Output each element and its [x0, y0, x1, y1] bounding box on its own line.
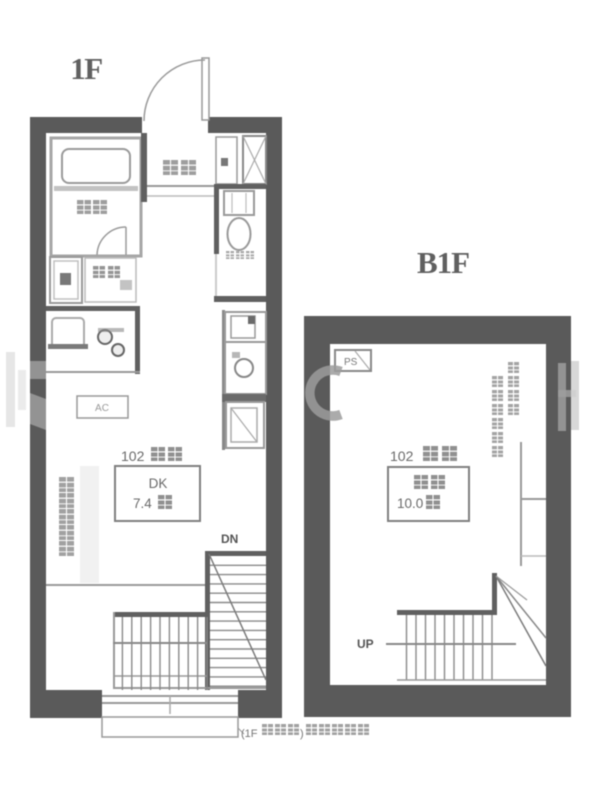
svg-text:): )	[300, 728, 304, 740]
svg-text:AC: AC	[95, 403, 109, 414]
svg-text:10.0: 10.0	[397, 496, 423, 511]
svg-text:1F: 1F	[70, 51, 102, 86]
svg-text:DK: DK	[149, 476, 168, 491]
svg-text:(1F: (1F	[241, 728, 258, 740]
svg-text:102: 102	[121, 448, 145, 464]
svg-text:DN: DN	[221, 532, 238, 546]
svg-text:B1F: B1F	[417, 245, 469, 280]
svg-text:102: 102	[390, 448, 414, 464]
svg-text:7.4: 7.4	[133, 496, 152, 511]
svg-text:UP: UP	[357, 637, 374, 651]
svg-text:PS: PS	[344, 357, 358, 368]
